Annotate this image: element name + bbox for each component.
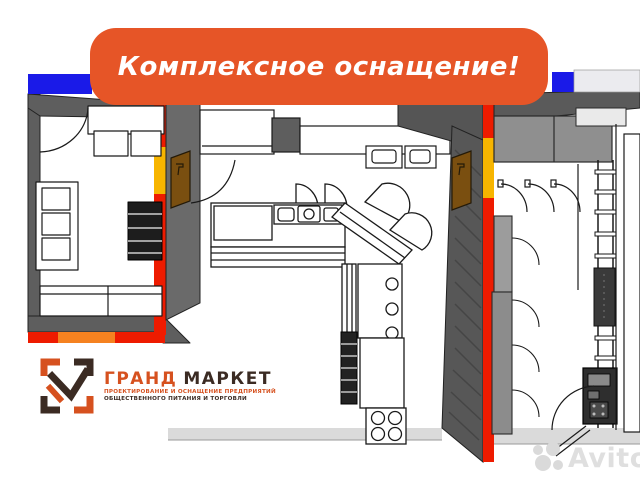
gray-cabinets-top [494,108,626,162]
promo-banner-text: Комплексное оснащение! [118,52,520,82]
light-wall-segment [574,70,640,92]
right-wall-column [616,124,640,432]
logo-text-block: ГРАНДМАРКЕТ ПРОЕКТИРОВАНИЕ И ОСНАЩЕНИЕ П… [104,369,276,404]
right-room [492,70,640,456]
avito-watermark: Avito [528,441,640,475]
avito-logo-icon [528,441,564,475]
brown-door-2 [452,151,471,210]
four-burner-stove [366,408,406,444]
vertical-rack [341,332,357,404]
logo-tagline-line2: ОБЩЕСТВЕННОГО ПИТАНИЯ И ТОРГОВЛИ [104,396,276,404]
blue-wall-segment-right [552,72,574,92]
grand-market-logo-icon [40,358,94,414]
ad-image: Комплексное оснащение! ГРАНДМАРКЕТ ПРОЕК… [0,0,640,479]
avito-watermark-text: Avito [568,443,640,474]
company-logo: ГРАНДМАРКЕТ ПРОЕКТИРОВАНИЕ И ОСНАЩЕНИЕ П… [40,358,276,414]
divider-wall [166,104,200,320]
logo-brand-word-2: МАРКЕТ [183,369,272,389]
orange-wall-segment [58,332,115,343]
blue-wall-segment-left [28,74,92,94]
yellow-wall-segment-right [483,138,494,198]
brown-door-1 [171,151,190,208]
left-room-bottom-wall [28,316,165,332]
logo-brand-name: ГРАНДМАРКЕТ [104,369,276,389]
logo-tagline-line1: ПРОЕКТИРОВАНИЕ И ОСНАЩЕНИЕ ПРЕДПРИЯТИЙ [104,389,276,397]
promo-banner: Комплексное оснащение! [90,28,548,105]
gray-cabinets-left-wall [492,216,539,434]
dark-shelf-rack [128,202,162,260]
logo-brand-word-1: ГРАНД [104,369,177,389]
